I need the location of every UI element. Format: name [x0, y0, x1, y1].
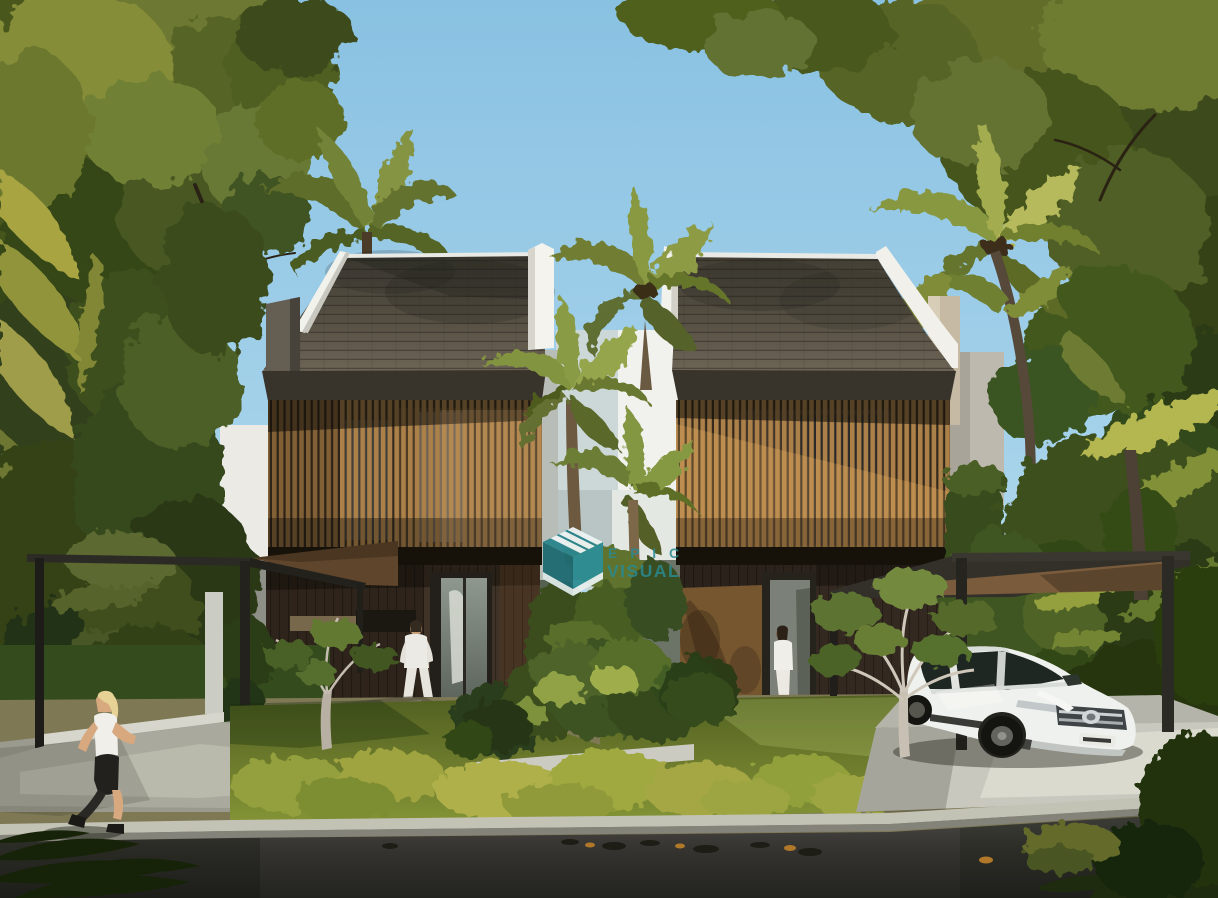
svg-text:VISUAL: VISUAL [607, 561, 680, 581]
svg-text:E P I C: E P I C [608, 545, 684, 561]
